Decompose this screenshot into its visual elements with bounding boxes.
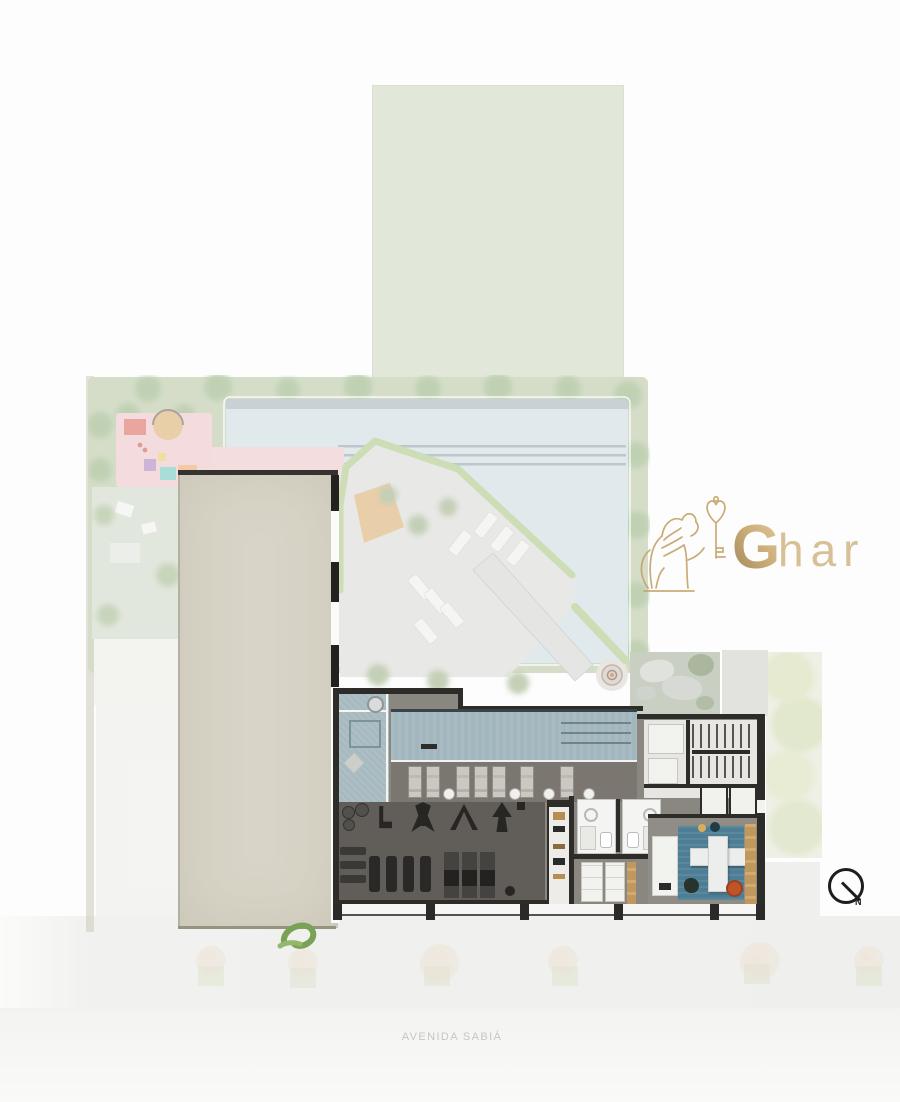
side-garden-path <box>96 700 178 916</box>
stair-flight <box>692 724 750 748</box>
bathroom-partition <box>616 799 620 852</box>
stair-wall <box>686 720 690 784</box>
plan-east-wall <box>757 716 765 912</box>
gym-bench <box>340 847 366 855</box>
weight-machine <box>403 856 414 892</box>
paved-terrace <box>720 650 768 716</box>
sun-lounger <box>492 766 506 798</box>
counter-top-wall <box>549 800 569 807</box>
street-tree <box>740 942 780 982</box>
sun-lounger <box>456 766 470 798</box>
spa-divider-line <box>386 694 388 802</box>
lap-pool-edge <box>391 709 637 712</box>
sofa <box>708 836 728 892</box>
zen-moss <box>696 696 714 710</box>
east-wall-door-gap <box>757 800 765 813</box>
counter-item <box>553 844 565 849</box>
locker-column <box>581 862 603 902</box>
weight-machine <box>420 856 431 892</box>
stair-flight <box>692 756 750 778</box>
lane-line <box>561 732 631 734</box>
elevator-shaft <box>729 786 757 816</box>
lounge-room <box>648 818 757 912</box>
facade-column <box>614 904 623 920</box>
deck-side-table <box>543 788 555 800</box>
sink-icon <box>584 808 598 822</box>
gym-bench <box>340 861 366 869</box>
lane-line <box>561 742 631 744</box>
counter-item <box>553 858 565 865</box>
spa-table-round <box>367 696 384 713</box>
plan-north-wall-c <box>636 714 765 719</box>
counter-item <box>553 826 565 832</box>
gym-machine <box>488 802 516 832</box>
toilet-icon <box>600 832 612 848</box>
sun-lounger <box>560 766 574 798</box>
spa-room <box>339 694 389 802</box>
spa-table-square <box>344 753 364 773</box>
logo-initial: G <box>732 513 780 582</box>
stair-rail <box>692 750 750 754</box>
tree-canopy-block <box>372 85 624 380</box>
gym-machine <box>410 802 436 832</box>
west-garden <box>92 487 180 705</box>
tower-wall-segment <box>331 645 339 687</box>
bathroom-room <box>577 799 616 854</box>
gym-small-item <box>505 886 515 896</box>
kettlebell <box>342 806 355 819</box>
spa-tub <box>349 720 381 748</box>
compass-north-label: N <box>855 897 862 907</box>
zen-stone <box>636 686 656 700</box>
indoor-deck <box>391 762 637 802</box>
gym-machine <box>376 806 392 832</box>
locker-column <box>605 862 625 902</box>
orange-pouf <box>726 880 743 897</box>
pool-mat <box>421 744 437 749</box>
facade-column <box>333 904 342 920</box>
street-tree <box>548 946 578 976</box>
counter-item <box>553 874 565 879</box>
shower-stall <box>580 826 596 850</box>
island-sink <box>659 883 671 890</box>
dark-bowl <box>710 822 720 832</box>
lion-holding-key-icon <box>641 497 725 591</box>
zen-moss <box>688 654 714 676</box>
tower-wall-segment <box>331 475 339 511</box>
wood-bench-strip <box>627 862 636 904</box>
tower-wall-segment <box>331 562 339 602</box>
brand-logo: G har <box>638 496 858 602</box>
gold-side-table <box>698 824 706 832</box>
counter-item <box>553 812 565 820</box>
gym-bench <box>340 875 366 883</box>
deck-side-table <box>509 788 521 800</box>
kitchen-island <box>652 836 678 896</box>
street-strip <box>0 1008 900 1102</box>
gym-room <box>339 802 545 902</box>
facade-glass-line <box>333 914 765 916</box>
site-plan-canvas: AVENIDA SABIÁ <box>0 0 900 1102</box>
sun-lounger <box>520 766 534 798</box>
lap-pool <box>391 712 637 760</box>
sun-lounger <box>426 766 440 798</box>
gym-east-wall <box>569 796 574 904</box>
fire-pit <box>596 659 628 691</box>
tower-footprint <box>178 470 338 928</box>
weight-machine <box>369 856 380 892</box>
sun-lounger <box>474 766 488 798</box>
plant-pot <box>684 878 699 893</box>
facade-column <box>520 904 529 920</box>
zen-stone <box>661 674 703 701</box>
kettlebell <box>355 803 369 817</box>
street-tree <box>854 946 884 976</box>
service-room <box>648 724 684 754</box>
gym-small-item <box>517 802 525 810</box>
sun-lounger <box>408 766 422 798</box>
elevator-shaft <box>700 786 728 816</box>
facade-column <box>710 904 719 920</box>
service-room <box>648 758 678 784</box>
east-paved-block <box>762 862 820 916</box>
tower-north-wall <box>178 470 338 475</box>
zen-garden <box>630 652 720 716</box>
facade-column <box>756 904 765 920</box>
pool-garden-graphic <box>88 375 650 707</box>
weight-machine <box>386 856 397 892</box>
kettlebell <box>343 819 355 831</box>
toilet-icon <box>627 832 639 848</box>
gym-machine <box>450 804 478 830</box>
juice-bar-counter <box>547 800 569 904</box>
facade-column <box>426 904 435 920</box>
green-sculpture <box>276 916 322 956</box>
street-name-label: AVENIDA SABIÁ <box>392 1031 512 1043</box>
treadmill <box>444 852 459 898</box>
street-tree <box>420 944 460 984</box>
lane-line <box>561 722 631 724</box>
treadmill <box>480 852 495 898</box>
east-garden-strip <box>766 652 822 858</box>
street-tree <box>196 946 226 976</box>
wood-bench-strip <box>745 824 756 908</box>
logo-rest: har <box>778 524 858 576</box>
deck-side-table <box>443 788 455 800</box>
treadmill <box>462 852 477 898</box>
